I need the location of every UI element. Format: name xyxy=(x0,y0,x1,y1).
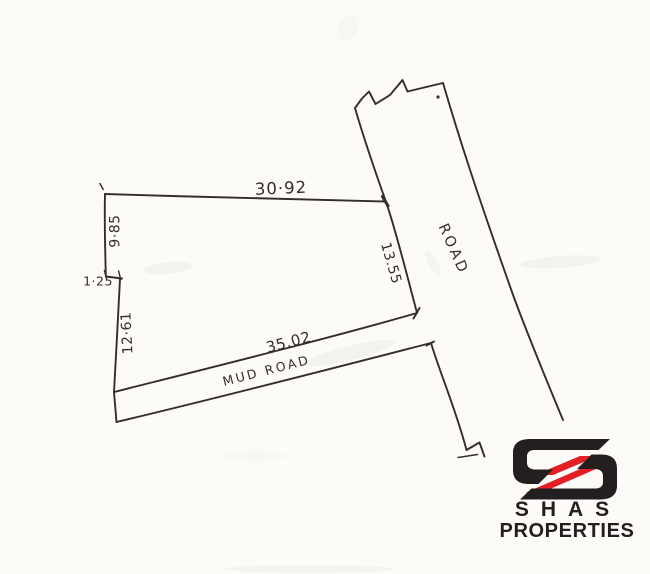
ink-dot xyxy=(436,95,439,98)
logo-s-mark xyxy=(513,439,617,500)
survey-sketch: 30·92 9·85 1·25 12·61 13.55 35.02 ROAD M… xyxy=(0,0,650,574)
road-break-zigzag xyxy=(355,80,443,108)
shas-properties-logo: SHAS PROPERTIES xyxy=(500,439,635,542)
road-arrow-dash xyxy=(458,455,478,458)
road-left-edge-upper xyxy=(355,108,417,313)
mud-road-left-closure xyxy=(114,392,117,422)
corner-tick-top-left xyxy=(100,184,103,190)
dim-left-lower: 12·61 xyxy=(118,311,136,354)
plot-left-edge xyxy=(105,194,106,275)
logo-wordmark: SHAS xyxy=(515,498,621,521)
dim-top-edge: 30·92 xyxy=(254,178,307,199)
dimension-labels: 30·92 9·85 1·25 12·61 13.55 35.02 ROAD M… xyxy=(83,178,471,389)
logo-subtitle: PROPERTIES xyxy=(500,520,635,542)
road-left-edge-lower xyxy=(431,343,467,450)
dim-left-upper: 9·85 xyxy=(107,214,123,247)
plot-boundary xyxy=(100,184,420,393)
sketch-svg: 30·92 9·85 1·25 12·61 13.55 35.02 ROAD M… xyxy=(0,0,650,574)
plot-top-edge xyxy=(105,194,386,202)
dim-left-step: 1·25 xyxy=(83,273,113,288)
label-mud-road: MUD ROAD xyxy=(221,352,312,389)
